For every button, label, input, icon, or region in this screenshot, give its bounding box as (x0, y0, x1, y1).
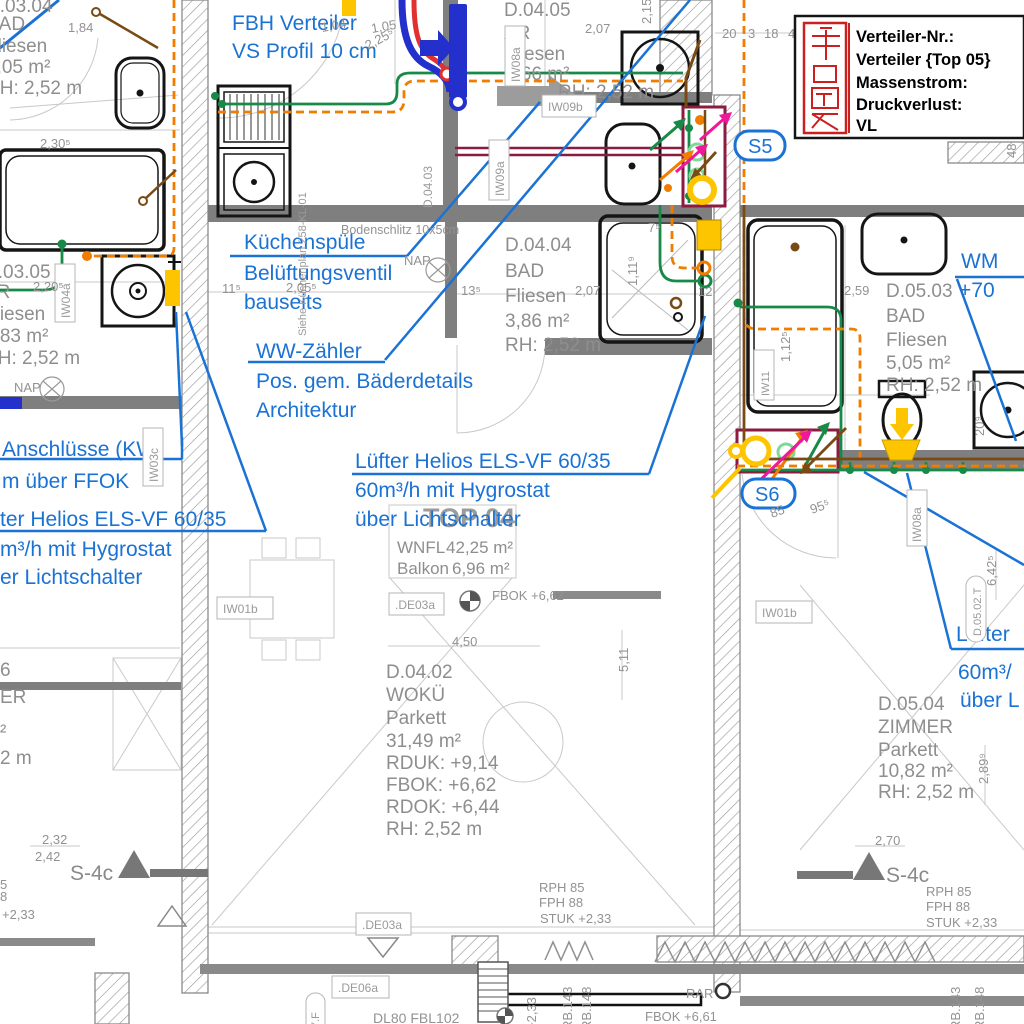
ww-meter (165, 270, 180, 306)
ceiling-id: .DE03a (362, 918, 402, 932)
room-id: D.04.02 (386, 662, 453, 683)
room-d0304: D.03.04 BAD Fliesen 4,05 m² RH: 2,52 m (0, 0, 82, 99)
wall-left-vertical (182, 0, 208, 993)
annotation-ww: WW-Zähler (256, 340, 362, 363)
legend-line: Massenstrom: (856, 74, 968, 92)
room-fragment: 2 m (0, 748, 32, 769)
door-id: D.04.03 (421, 166, 435, 208)
room-use: AR (0, 282, 10, 303)
dim: 20⁹ (972, 416, 987, 436)
wall-left-room-divider (0, 682, 181, 690)
wnfl-label: WNFL (397, 538, 445, 557)
room-d0402: D.04.02 WOKÜ Parkett 31,49 m² RDUK: +9,1… (386, 662, 500, 840)
balkon-label: Balkon (397, 559, 449, 578)
washbasin-left (116, 58, 164, 128)
radiator-coil-small (545, 942, 593, 960)
kitchen-sink-unit (218, 86, 290, 216)
room-floor: Fliesen (886, 330, 947, 351)
wall-bottom-left-band (0, 938, 95, 946)
floorplan-canvas: D.03.04 BAD Fliesen 4,05 m² RH: 2,52 m D… (0, 0, 1024, 1024)
room-height: RH: 2,52 m (886, 375, 982, 396)
annotation-luefter-left: m³/h mit Hygrostat (0, 538, 172, 561)
shaft-label: S6 (755, 484, 779, 506)
ceiling-id: .DE06a (338, 981, 378, 995)
room-floor: Fliesen (0, 36, 47, 57)
dim: 20 (722, 26, 736, 41)
annotation-kw: m über FFOK (2, 470, 129, 493)
survey-point-icon (460, 591, 480, 611)
annotation-luefter-right: über L (960, 689, 1020, 712)
wall-id: IW09b (548, 100, 583, 114)
dim: 1,12⁵ (778, 331, 793, 362)
room-floor: Parkett (878, 740, 939, 761)
washbasin-right (862, 214, 946, 274)
dim: 2,89⁹ (976, 753, 991, 784)
height-note: STUK +2,33 (540, 911, 611, 926)
dim: 48 (1004, 144, 1019, 158)
annotation-fbh: VS Profil 10 cm (232, 40, 377, 63)
wall-bath-left (445, 222, 457, 338)
dim: 2,70 (875, 833, 900, 848)
room-area: 31,49 m² (386, 731, 461, 752)
wc-connector-arrow-icon (890, 408, 914, 440)
room-use: ZIMMER (878, 717, 953, 738)
dim: 2,20⁵ (33, 279, 64, 294)
nap-label: NAP (14, 380, 41, 395)
annotation-wm: +70 (959, 279, 995, 302)
dim: 18 (764, 26, 778, 41)
supply-connection (451, 95, 465, 109)
annotation-kw: Anschlüsse (KW) (2, 438, 163, 461)
room-fragment: 6 (0, 660, 11, 681)
kitchen-plan-ref: Siehe Küchenplan 258-KL-01 (297, 192, 309, 336)
level-mark-bar (553, 591, 661, 599)
wall-bottom-right (657, 936, 1024, 962)
room-id: D.05.04 (878, 694, 945, 715)
section-marker-triangle (853, 852, 885, 880)
annotation-luefter: Lüfter Helios ELS-VF 60/35 (355, 450, 611, 473)
nap-label: NAP (404, 253, 431, 268)
room-id: D.04.04 (505, 235, 572, 256)
wall-left-bath-bottom (0, 396, 182, 409)
room-area: 10,82 m² (878, 761, 953, 782)
room-level: RDOK: +6,44 (386, 797, 500, 818)
dim: 2,15⁵ (639, 0, 654, 24)
room-level: FBOK: +6,62 (386, 775, 496, 796)
dim: 5,11 (616, 648, 631, 672)
section-marker-label: S-4c (70, 862, 113, 885)
room-area: 3,83 m² (0, 326, 48, 347)
legend-line: VL (856, 117, 877, 135)
annotation-wm: WM (961, 250, 998, 273)
vent-triangle-icon (368, 938, 398, 957)
drain-ring (743, 438, 769, 464)
wall-id: IW01b (762, 606, 797, 620)
bubble-s5: S5 (735, 131, 785, 160)
shaft-label: S5 (748, 136, 772, 158)
section-marker-triangle (118, 850, 150, 878)
room-use: WOKÜ (386, 685, 445, 706)
legend-line: Verteiler {Top 05} (856, 51, 991, 69)
room-height: RH: 2,52 m (0, 348, 80, 369)
room-height: RH: 2,52 m (0, 78, 82, 99)
misc-marks: S-4c S-4c RPH 85 FPH 88 STUK +2,33 RPH 8… (0, 223, 997, 1024)
annotation-ww: Architektur (256, 399, 356, 422)
rar-label: RAR (686, 986, 713, 1001)
pipe-id: RB.148 (579, 987, 594, 1024)
dim: 6,42⁵ (984, 555, 999, 586)
slot-note: Bodenschlitz 10x5cm (341, 223, 459, 237)
dim: 13⁵ (461, 283, 481, 298)
dim: 2,05⁵ (286, 280, 317, 295)
room-floor: Fliesen (0, 304, 45, 325)
washbasin-center (606, 124, 660, 204)
balkon-value: 6,96 m² (452, 559, 510, 578)
room-area: 4,05 m² (0, 57, 50, 78)
room-area: 3,86 m² (505, 311, 569, 332)
dim: 2,59 (844, 283, 869, 298)
room-area: 5,05 m² (886, 353, 950, 374)
height-note-fragment: +2,33 (2, 907, 35, 922)
annotation-luefter-left: ter Helios ELS-VF 60/35 (0, 508, 226, 531)
dim: 2,07 (585, 21, 610, 36)
room-floor: Fliesen (505, 286, 566, 307)
room-height: RH: 2,52 m (386, 819, 482, 840)
rar-symbol-icon (716, 984, 730, 998)
pipe-id: RB.143 (948, 987, 963, 1024)
room-d0306: 6 ER ² 2 m (0, 660, 32, 769)
room-use: BAD (0, 14, 25, 35)
wnfl-value: 42,25 m² (446, 538, 513, 557)
annotation-luefter: über Lichtschalter (355, 508, 521, 531)
section-marker-label: S-4c (886, 864, 929, 887)
legend-line: Druckverlust: (856, 96, 962, 114)
dim: 95⁵ (808, 496, 832, 517)
wall-id: IW08a (509, 47, 523, 82)
height-note: RPH 85 (539, 880, 585, 895)
pipe-id: RB.143 (560, 987, 575, 1024)
height-note-fragment: 8 (0, 889, 7, 904)
wall-balcony-band (200, 964, 1024, 974)
heating-supply (402, 0, 467, 109)
wall-id: IW03c (147, 448, 161, 482)
room-floor: Parkett (386, 708, 447, 729)
room-height: RH: 2,52 m (878, 782, 974, 803)
legend-line: Verteiler-Nr.: (856, 28, 954, 46)
room-use: BAD (886, 306, 925, 327)
drain-ring (690, 178, 714, 202)
room-height: RH: 2,52 m (505, 335, 601, 356)
fbh-pipe-stub (0, 397, 22, 409)
dim: 2,32 (42, 832, 67, 847)
dim: 7⁵ (648, 220, 661, 235)
dim: 12 (698, 284, 712, 299)
annotation-luefter-left: er Lichtschalter (0, 566, 142, 589)
washing-machine-left (102, 256, 174, 326)
dim: 2,30⁵ (40, 136, 71, 151)
dim: 1,11⁹ (625, 256, 640, 286)
ceiling-id: .DE03a (395, 598, 435, 612)
height-note: FPH 88 (539, 895, 583, 910)
level-note: FBOK +6,61 (645, 1009, 717, 1024)
floorplan-page: D.03.04 BAD Fliesen 4,05 m² RH: 2,52 m D… (0, 0, 1024, 1024)
drain-point (791, 243, 800, 252)
ref-label: 7.F (310, 1012, 322, 1024)
room-fragment: ² (0, 722, 6, 743)
room-id: D.04.05 (504, 0, 571, 21)
wall-id: IW01b (223, 602, 258, 616)
fbh-verteiler-bar (449, 4, 467, 98)
height-note: FPH 88 (926, 899, 970, 914)
annotation-luefter: 60m³/h mit Hygrostat (355, 479, 550, 502)
wall-id: IW09a (493, 161, 507, 196)
room-fragment: ER (0, 687, 26, 708)
level-note: +2,33 (524, 997, 539, 1024)
wall-id: IW08a (910, 507, 924, 542)
legend-box: Verteiler-Nr.: Verteiler {Top 05} Massen… (795, 16, 1024, 138)
room-ref: D.05.02.T (972, 587, 984, 636)
survey-point-icon (497, 1008, 513, 1024)
annotation-ww: Pos. gem. Bäderdetails (256, 370, 473, 393)
height-note: RPH 85 (926, 884, 972, 899)
wall-id: IW11 (760, 371, 772, 396)
dim: 2,07 (575, 283, 600, 298)
level-note: FBOK +6,62 (492, 588, 564, 603)
duct-note: DL80 FBL102 (373, 1010, 460, 1024)
height-note: STUK +2,33 (926, 915, 997, 930)
dim: 11⁵ (222, 281, 241, 296)
dim: 2,42 (35, 849, 60, 864)
dim: 3 (748, 26, 755, 41)
bubble-s6: S6 (742, 479, 795, 508)
annotation-luefter-right: 60m³/ (958, 661, 1012, 684)
room-use: BAD (505, 261, 544, 282)
wall-bottom-left (95, 973, 129, 1024)
pipe-id: RB.148 (972, 987, 987, 1024)
annotation-kueche: Belüftungsventil (244, 262, 392, 285)
dim: 1,84 (68, 20, 93, 35)
room-id: D.05.03 (886, 281, 953, 302)
room-level: RDUK: +9,14 (386, 753, 499, 774)
dim: 4,50 (452, 634, 477, 649)
